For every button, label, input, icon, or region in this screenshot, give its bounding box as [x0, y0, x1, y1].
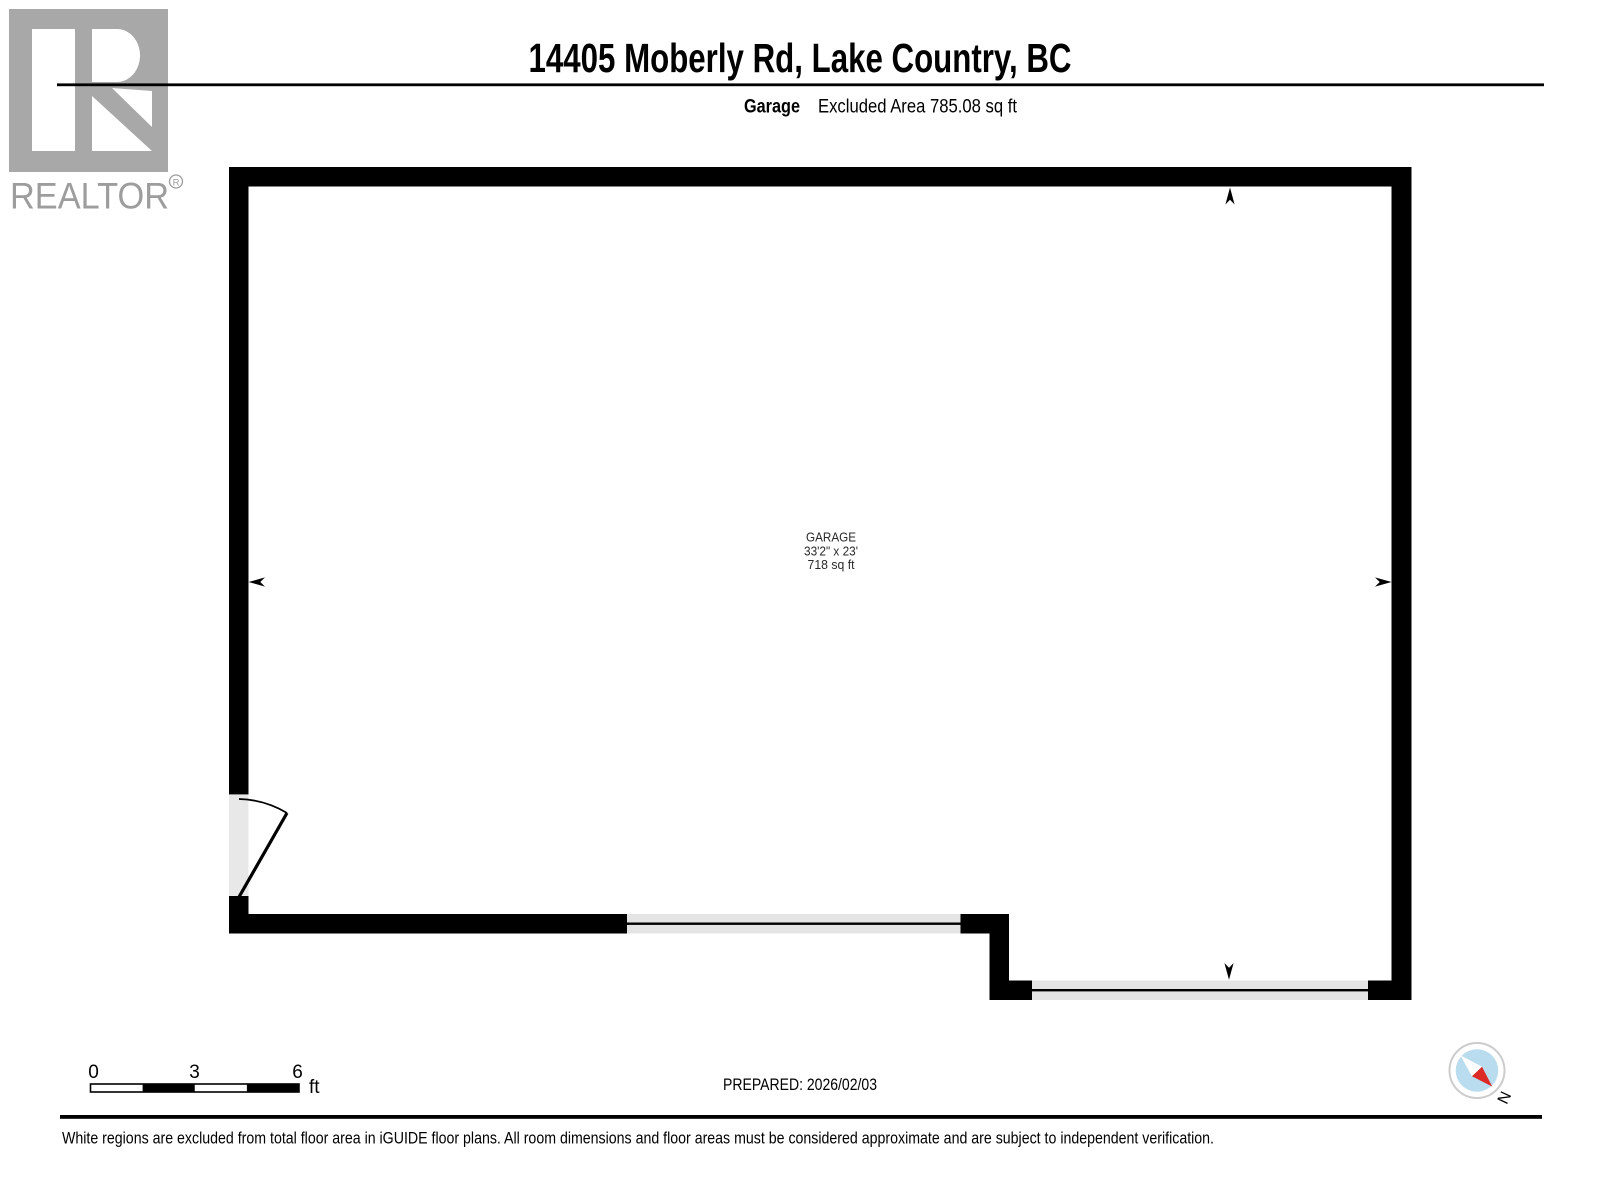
svg-text:ft: ft — [309, 1077, 320, 1098]
svg-text:White regions are excluded fro: White regions are excluded from total fl… — [62, 1129, 1214, 1148]
svg-text:PREPARED: 2026/02/03: PREPARED: 2026/02/03 — [723, 1075, 877, 1094]
svg-text:14405 Moberly Rd, Lake Country: 14405 Moberly Rd, Lake Country, BC — [529, 35, 1072, 81]
svg-text:REALTOR: REALTOR — [10, 175, 169, 217]
svg-text:6: 6 — [292, 1062, 303, 1083]
svg-text:3: 3 — [189, 1062, 200, 1083]
svg-text:GARAGE: GARAGE — [806, 531, 856, 545]
svg-text:0: 0 — [88, 1062, 99, 1083]
svg-text:718 sq ft: 718 sq ft — [808, 558, 855, 572]
svg-text:R: R — [173, 178, 180, 189]
svg-text:Garage: Garage — [744, 97, 800, 118]
svg-text:Excluded Area 785.08 sq ft: Excluded Area 785.08 sq ft — [818, 97, 1018, 118]
svg-text:33'2" x 23': 33'2" x 23' — [804, 545, 858, 559]
